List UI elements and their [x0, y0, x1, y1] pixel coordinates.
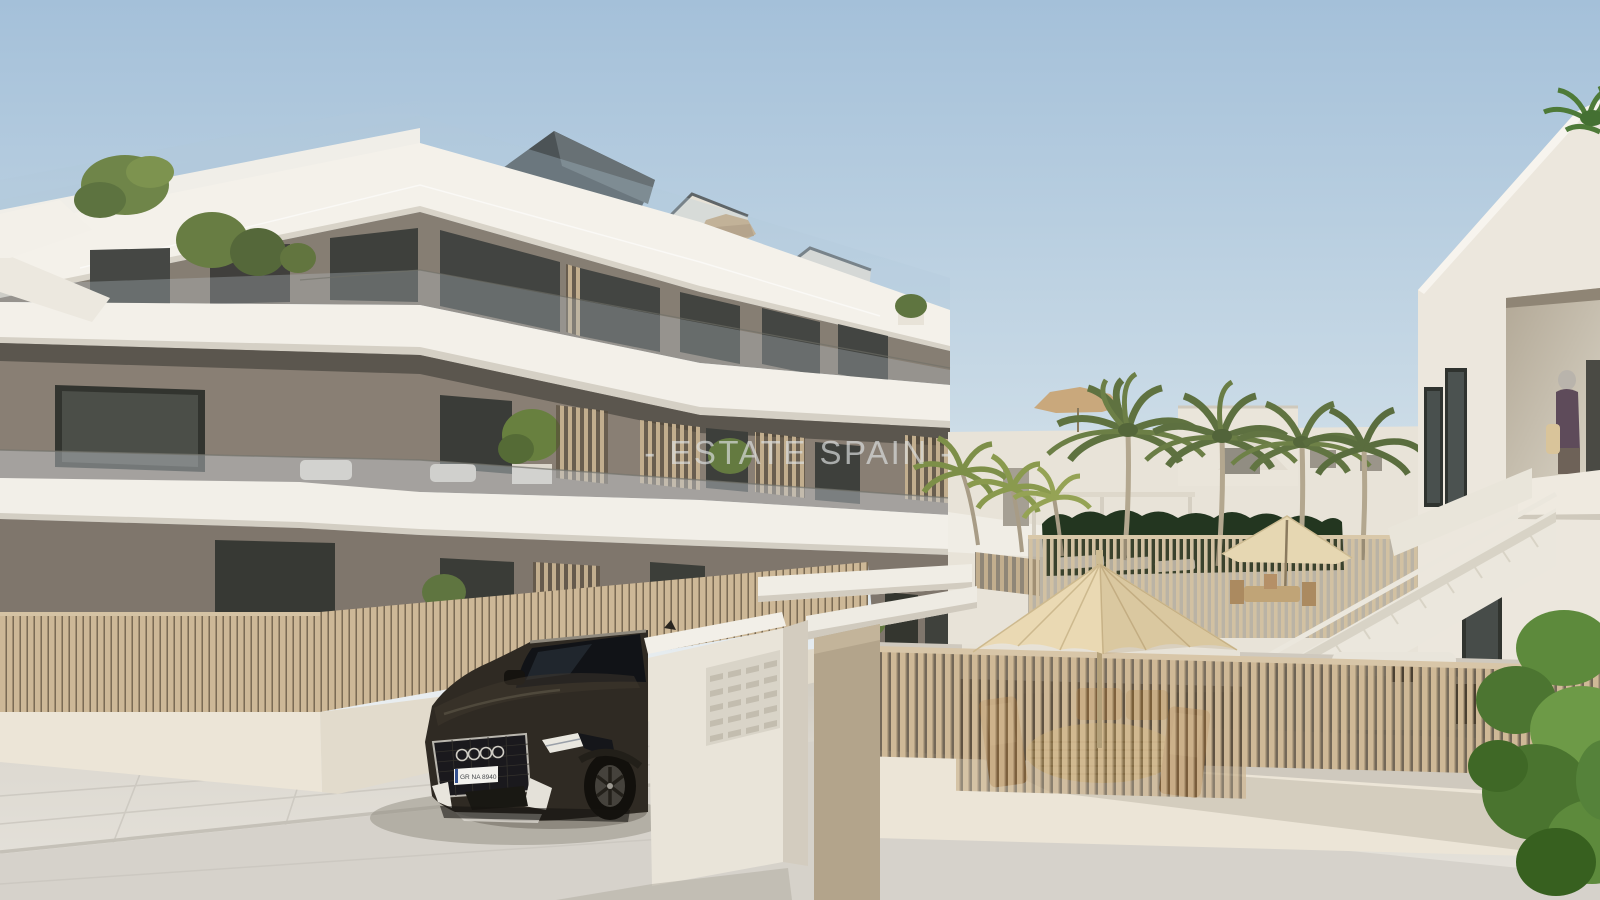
svg-text:- ESTATE SPAIN -: - ESTATE SPAIN - — [644, 434, 954, 471]
svg-text:GR NA 8940: GR NA 8940 — [460, 774, 497, 781]
